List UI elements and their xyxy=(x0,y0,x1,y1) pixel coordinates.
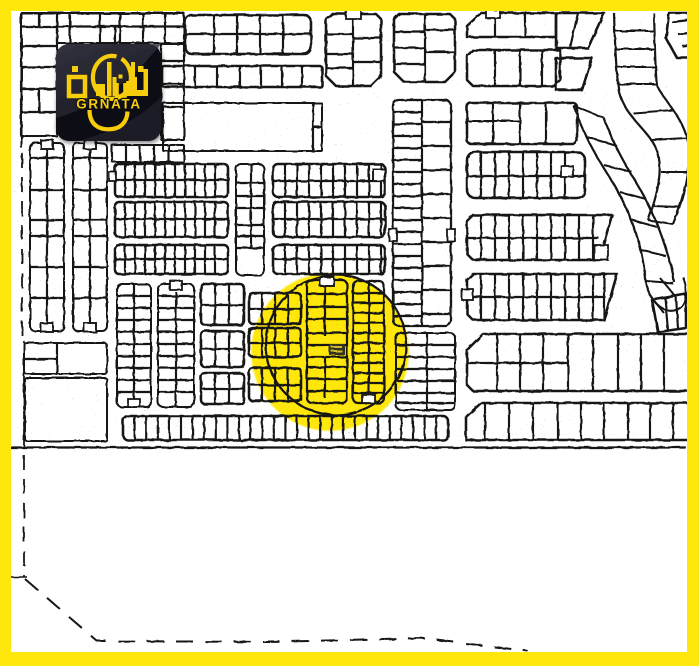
svg-text:GRNATA: GRNATA xyxy=(76,97,142,112)
